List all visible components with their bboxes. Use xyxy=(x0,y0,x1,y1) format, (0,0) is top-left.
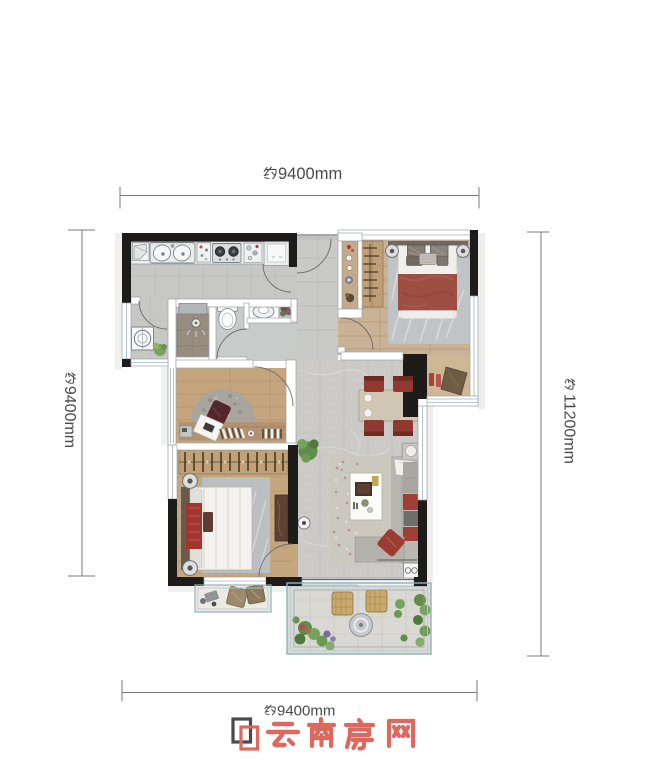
svg-text:11200mm: 11200mm xyxy=(561,394,578,464)
svg-text:9400mm: 9400mm xyxy=(61,386,78,448)
svg-text:9400mm: 9400mm xyxy=(277,703,335,720)
svg-text:9400mm: 9400mm xyxy=(278,165,342,183)
